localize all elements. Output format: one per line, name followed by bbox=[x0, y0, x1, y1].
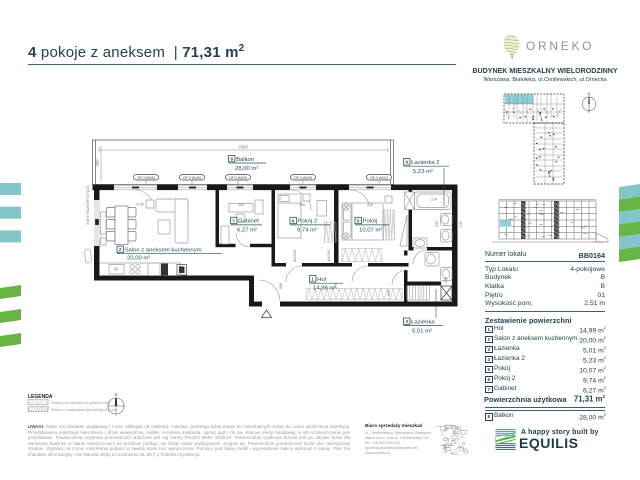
svg-text:5,01 m²: 5,01 m² bbox=[412, 329, 432, 335]
svg-text:20,00 m²: 20,00 m² bbox=[127, 256, 150, 262]
svg-text:80/200: 80/200 bbox=[293, 249, 297, 262]
svg-text:5,23 m²: 5,23 m² bbox=[413, 169, 433, 175]
svg-text:OP-3 W(02): OP-3 W(02) bbox=[370, 176, 388, 180]
svg-text:Łazienka 2: Łazienka 2 bbox=[411, 160, 440, 166]
svg-text:28,00 m²: 28,00 m² bbox=[235, 166, 258, 172]
svg-text:6,27 m²: 6,27 m² bbox=[237, 228, 257, 234]
svg-text:310: 310 bbox=[367, 203, 374, 207]
svg-text:OP-3 W(09): OP-3 W(09) bbox=[229, 176, 247, 180]
svg-text:8: 8 bbox=[230, 156, 233, 161]
svg-text:2: 2 bbox=[119, 247, 122, 252]
svg-text:Hol: Hol bbox=[317, 277, 326, 283]
svg-text:7: 7 bbox=[232, 218, 235, 223]
svg-text:608: 608 bbox=[387, 289, 391, 296]
svg-text:Balkon: Balkon bbox=[236, 157, 254, 163]
svg-text:Gabinet: Gabinet bbox=[238, 219, 259, 225]
svg-text:Salon z aneksem kuchennym: Salon z aneksem kuchennym bbox=[125, 248, 202, 254]
svg-text:214: 214 bbox=[430, 198, 437, 202]
svg-text:5,55: 5,55 bbox=[136, 203, 144, 207]
svg-text:Łazienka: Łazienka bbox=[411, 319, 435, 325]
svg-text:237: 237 bbox=[459, 220, 463, 228]
svg-text:333: 333 bbox=[435, 220, 439, 227]
svg-text:246: 246 bbox=[444, 276, 448, 284]
svg-text:14,99 m²: 14,99 m² bbox=[313, 286, 336, 292]
svg-text:N: N bbox=[114, 392, 117, 397]
svg-text:300: 300 bbox=[299, 203, 306, 207]
svg-text:10,07 m²: 10,07 m² bbox=[359, 228, 382, 234]
svg-text:90/200: 90/200 bbox=[327, 249, 331, 262]
svg-text:5: 5 bbox=[357, 218, 360, 223]
svg-text:508: 508 bbox=[279, 282, 283, 289]
svg-text:OP-3 W(26): OP-3 W(26) bbox=[183, 176, 201, 180]
svg-text:3: 3 bbox=[405, 319, 408, 324]
svg-text:4: 4 bbox=[405, 160, 408, 165]
svg-text:OP-3 W(26): OP-3 W(26) bbox=[294, 176, 312, 180]
svg-text:1: 1 bbox=[311, 277, 314, 282]
svg-text:252: 252 bbox=[237, 203, 245, 207]
svg-text:KURTYNA/TAPETA FAZA: KURTYNA/TAPETA FAZA bbox=[86, 185, 90, 225]
svg-text:Pokój 2: Pokój 2 bbox=[298, 219, 318, 225]
svg-text:Pokój: Pokój bbox=[363, 219, 378, 225]
svg-text:6: 6 bbox=[292, 218, 295, 223]
svg-text:9,74 m²: 9,74 m² bbox=[297, 228, 317, 234]
svg-text:OP-3 W(06): OP-3 W(06) bbox=[137, 176, 155, 180]
svg-text:7400: 7400 bbox=[238, 145, 248, 150]
svg-text:N: N bbox=[588, 91, 591, 96]
svg-text:200: 200 bbox=[95, 159, 100, 168]
